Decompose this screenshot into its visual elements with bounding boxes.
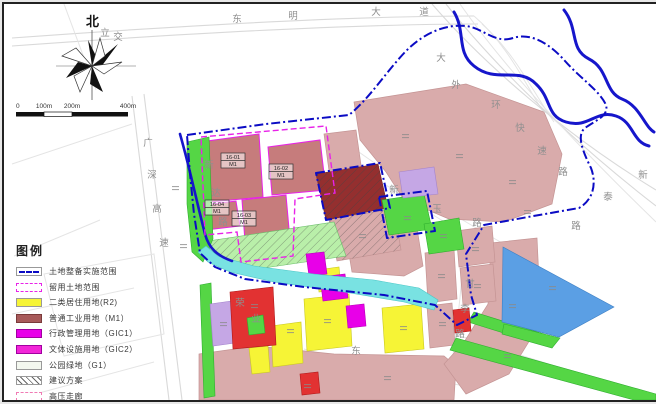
legend-item-label: 行政管理用地（GIC1）: [49, 328, 138, 339]
legend-item: 文体设施用地（GIC2）: [16, 344, 164, 355]
road-label-甘李路: 路: [455, 328, 465, 340]
legend-title: 图例: [16, 242, 164, 259]
legend-item-label: 高压走廊: [49, 391, 83, 402]
legend-item-label: 普通工业用地（M1）: [49, 313, 129, 324]
road-label-大外环快速路: 环: [491, 100, 501, 111]
road-label-广深高速: 深: [147, 170, 157, 181]
legend-item: 普通工业用地（M1）: [16, 313, 164, 324]
road-label-新泰路: 泰: [603, 191, 613, 203]
scale-tick: 0: [16, 103, 20, 110]
road-label-东明大道: 大: [371, 6, 381, 18]
legend-swatch-boundary: [16, 267, 42, 276]
parcel-label-16-04: 16-04M1: [205, 200, 229, 215]
legend-item-label: 公园绿地（G1）: [49, 360, 112, 371]
road-label-新玉路: 新: [389, 184, 399, 196]
compass-north-label: 北: [86, 14, 99, 29]
road-label-立交: 交: [113, 31, 123, 43]
legend-item-label: 二类居住用地(R2): [49, 297, 118, 308]
svg-text:16-04: 16-04: [210, 202, 224, 208]
road-label-广深高速: 广: [143, 137, 153, 149]
scale-tick: 200m: [64, 103, 80, 110]
svg-text:M1: M1: [240, 220, 248, 226]
legend-swatch-hv: [16, 392, 42, 401]
legend-swatch-gic1: [16, 329, 42, 338]
legend-item: 留用土地范围: [16, 282, 164, 293]
svg-text:M1: M1: [229, 162, 237, 168]
legend-item-label: 土地整备实施范围: [49, 266, 117, 277]
road-label-大外环快速路: 大: [436, 52, 446, 64]
compass-rose: 北: [56, 14, 136, 100]
road-label-东环路: 东: [351, 345, 361, 357]
road-label-甘李路: 甘: [465, 278, 475, 290]
road-label-新玉路: 玉: [432, 204, 442, 215]
road-label-东明大道: 道: [419, 6, 429, 18]
road-label-新泰路: 新: [638, 169, 648, 181]
scale-bar: 0100m200m400m: [16, 103, 136, 117]
road-label-甘李路: 李: [460, 303, 470, 315]
parcel-label-16-01: 16-01M1: [221, 153, 245, 168]
road-label-东明大道: 明: [288, 11, 298, 22]
legend-item-label: 留用土地范围: [49, 282, 100, 293]
svg-text:16-01: 16-01: [226, 155, 240, 161]
svg-text:M1: M1: [213, 209, 221, 215]
legend-item: 土地整备实施范围: [16, 266, 164, 277]
scale-tick: 100m: [36, 103, 52, 110]
road-label-大外环快速路: 快: [515, 122, 525, 134]
legend-items: 土地整备实施范围留用土地范围二类居住用地(R2)普通工业用地（M1）行政管理用地…: [16, 266, 164, 402]
road-label-立交: 立: [100, 27, 110, 39]
legend-item: 公园绿地（G1）: [16, 360, 164, 371]
road-label-新达路: 新: [204, 159, 214, 171]
legend-item: 行政管理用地（GIC1）: [16, 328, 164, 339]
road-label-荣业路: 荣: [235, 297, 245, 309]
legend-swatch-r2: [16, 298, 42, 307]
svg-text:16-03: 16-03: [237, 213, 251, 219]
svg-text:16-02: 16-02: [274, 166, 288, 172]
legend-swatch-hatch: [16, 376, 42, 385]
road-label-新达路: 达: [211, 187, 221, 199]
planning-map-frame: 东明大道立交大外环快速路新泰路广深高速新达路新玉路甘李路荣业东 16-01M11…: [2, 2, 656, 402]
legend-item-label: 建议方案: [49, 375, 83, 386]
road-label-荣业路: 业: [251, 314, 261, 325]
road-label-东明大道: 东: [232, 13, 242, 25]
legend-swatch-g1: [16, 361, 42, 370]
parcel-label-16-02: 16-02M1: [269, 164, 293, 179]
legend-panel: 图例 土地整备实施范围留用土地范围二类居住用地(R2)普通工业用地（M1）行政管…: [16, 242, 164, 402]
road-label-新玉路: 路: [472, 217, 482, 229]
legend-swatch-reserved: [16, 283, 42, 292]
legend-item: 高压走廊: [16, 391, 164, 402]
road-label-新达路: 路: [218, 216, 228, 228]
scale-tick: 400m: [120, 103, 136, 110]
road-label-大外环快速路: 外: [451, 79, 461, 91]
road-label-大外环快速路: 路: [558, 166, 568, 178]
legend-item: 建议方案: [16, 375, 164, 386]
road-label-大外环快速路: 速: [537, 146, 547, 157]
legend-item-label: 文体设施用地（GIC2）: [49, 344, 138, 355]
road-label-广深高速: 高: [152, 203, 162, 215]
legend-item: 二类居住用地(R2): [16, 297, 164, 308]
parcel-label-16-03: 16-03M1: [232, 211, 256, 226]
legend-swatch-gic2: [16, 345, 42, 354]
svg-text:M1: M1: [277, 173, 285, 179]
legend-swatch-m1: [16, 314, 42, 323]
road-label-新泰路: 路: [571, 220, 581, 232]
